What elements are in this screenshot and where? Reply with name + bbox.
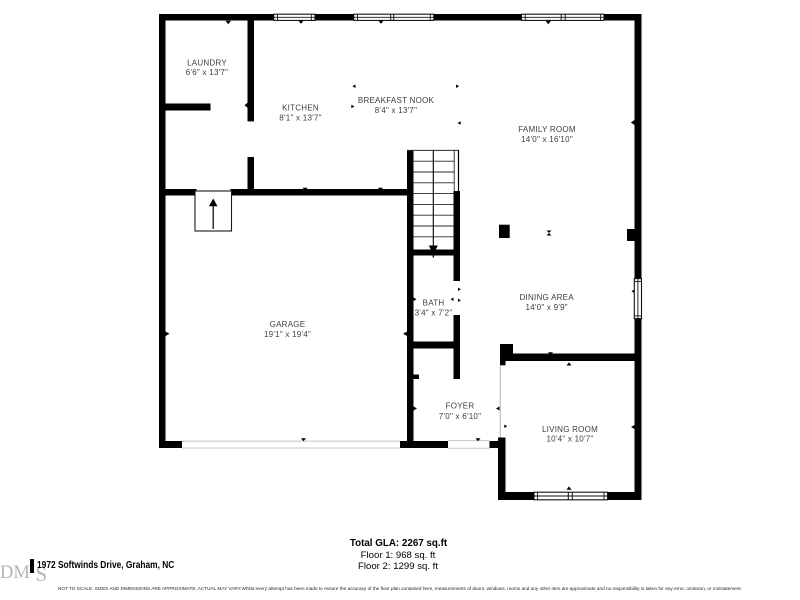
svg-text:8'1" x 13'7": 8'1" x 13'7"	[279, 114, 321, 123]
svg-text:BATH: BATH	[423, 299, 445, 308]
svg-text:FAMILY ROOM: FAMILY ROOM	[518, 125, 576, 134]
svg-text:GARAGE: GARAGE	[270, 320, 306, 329]
svg-text:LIVING ROOM: LIVING ROOM	[542, 425, 598, 434]
svg-text:6'6" x 13'7": 6'6" x 13'7"	[186, 68, 228, 77]
svg-text:DINING AREA: DINING AREA	[520, 293, 575, 302]
svg-text:19'1" x 19'4": 19'1" x 19'4"	[264, 330, 311, 339]
svg-text:FOYER: FOYER	[446, 402, 475, 411]
svg-text:3'4" x 7'2": 3'4" x 7'2"	[415, 309, 453, 318]
svg-text:KITCHEN: KITCHEN	[282, 104, 319, 113]
svg-text:14'0" x 16'10": 14'0" x 16'10"	[521, 135, 573, 144]
svg-text:10'4" x 10'7": 10'4" x 10'7"	[546, 435, 593, 444]
svg-text:LAUNDRY: LAUNDRY	[187, 59, 227, 68]
svg-text:7'0" x 6'10": 7'0" x 6'10"	[439, 412, 481, 421]
svg-text:BREAKFAST NOOK: BREAKFAST NOOK	[358, 96, 435, 105]
svg-text:8'4" x 13'7": 8'4" x 13'7"	[375, 106, 417, 115]
svg-text:14'0" x 9'9": 14'0" x 9'9"	[525, 303, 567, 312]
